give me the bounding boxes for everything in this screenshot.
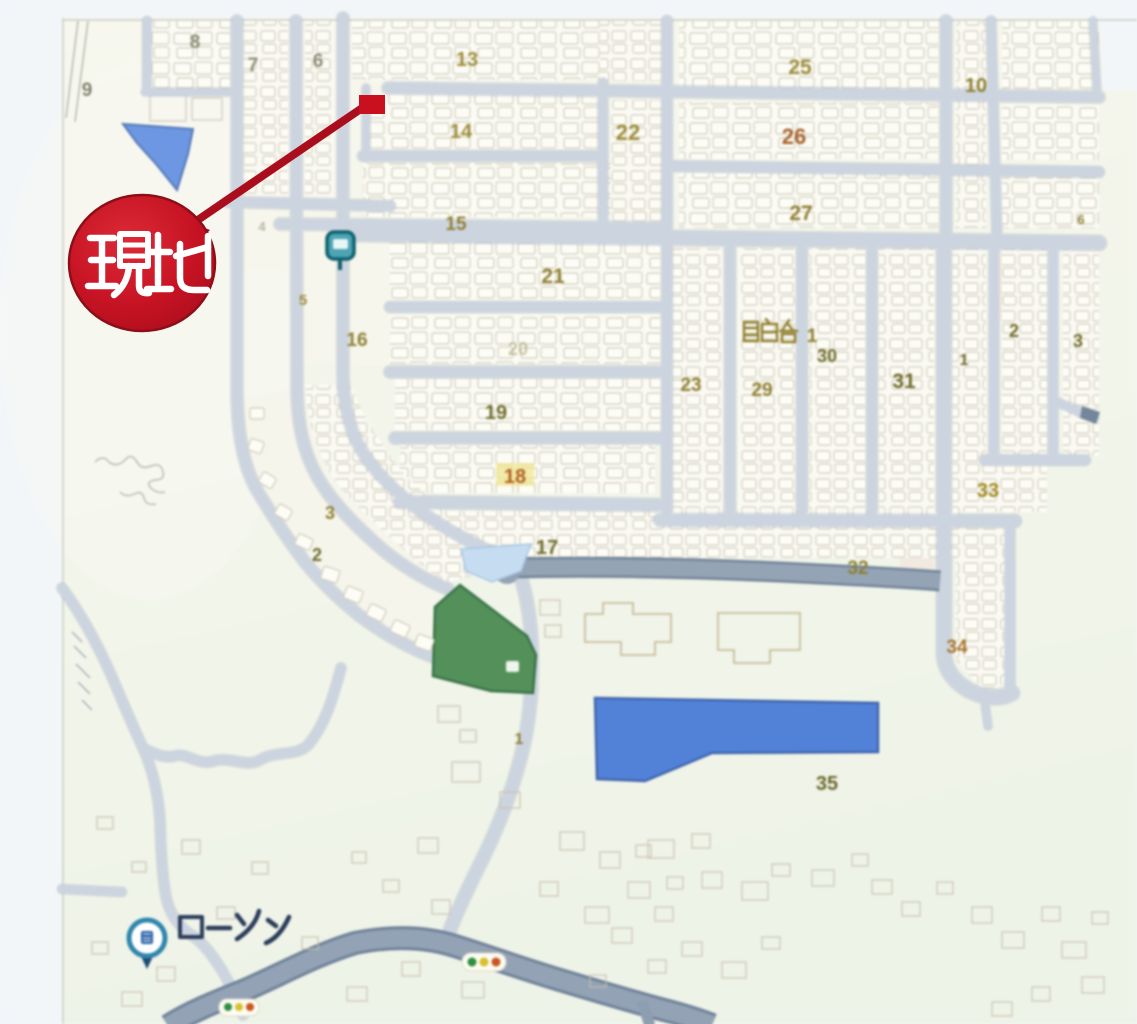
svg-text:15: 15 [445, 214, 467, 235]
svg-text:8: 8 [190, 32, 201, 53]
svg-text:1: 1 [960, 352, 969, 369]
svg-text:34: 34 [946, 637, 968, 658]
svg-text:6: 6 [313, 51, 324, 72]
svg-text:23: 23 [680, 375, 701, 396]
svg-text:7: 7 [248, 55, 259, 76]
svg-text:22: 22 [616, 120, 640, 145]
svg-text:17: 17 [536, 537, 558, 559]
svg-text:3: 3 [325, 503, 335, 523]
svg-text:2: 2 [312, 545, 322, 565]
svg-text:10: 10 [965, 75, 987, 97]
svg-text:20: 20 [508, 339, 528, 359]
svg-text:31: 31 [892, 370, 916, 393]
svg-text:29: 29 [751, 380, 772, 401]
svg-text:32: 32 [847, 558, 868, 579]
svg-text:5: 5 [299, 292, 307, 309]
svg-text:25: 25 [788, 56, 812, 79]
svg-text:2: 2 [1009, 321, 1019, 341]
svg-text:13: 13 [456, 49, 478, 71]
svg-text:16: 16 [346, 330, 367, 351]
svg-text:4: 4 [258, 219, 266, 234]
svg-text:26: 26 [782, 124, 806, 149]
svg-text:14: 14 [450, 121, 473, 143]
svg-text:27: 27 [789, 202, 812, 225]
svg-text:18: 18 [504, 466, 526, 488]
svg-text:1: 1 [807, 326, 818, 347]
svg-text:30: 30 [817, 346, 837, 366]
svg-text:33: 33 [977, 480, 999, 502]
svg-text:1: 1 [515, 731, 524, 748]
svg-text:3: 3 [1073, 331, 1083, 351]
svg-text:6: 6 [1077, 212, 1084, 227]
svg-text:21: 21 [541, 265, 565, 288]
svg-text:9: 9 [82, 80, 93, 101]
svg-text:19: 19 [485, 402, 507, 424]
svg-text:35: 35 [816, 773, 838, 795]
